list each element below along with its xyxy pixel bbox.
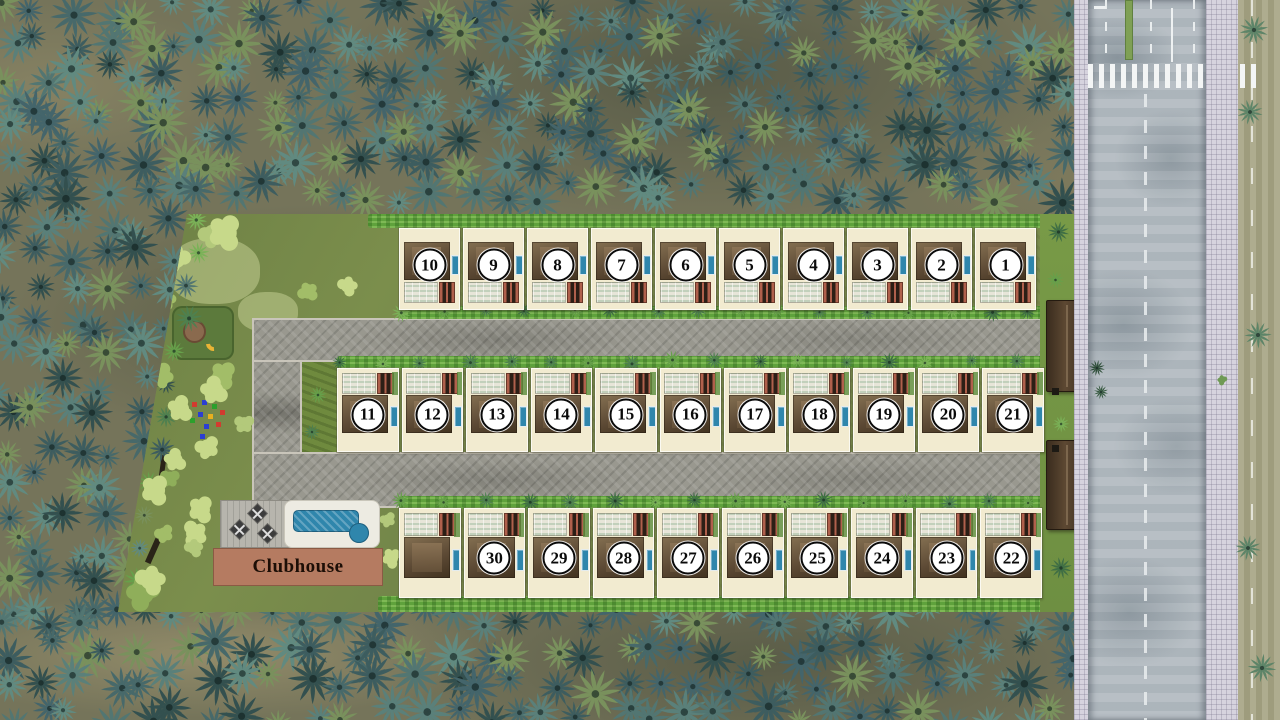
unit-number-badge: 6	[669, 249, 702, 282]
site-plan-rendering: Clubhouse 109876543211112131415161718192…	[0, 0, 1280, 720]
clubhouse-label: Clubhouse	[252, 556, 343, 578]
unit-number-badge: 13	[480, 398, 513, 431]
villa-unit-28: 28	[593, 508, 655, 598]
villa-windows	[439, 282, 456, 303]
unit-number-badge: 27	[672, 542, 705, 575]
villa-trellis	[392, 372, 397, 395]
villa-pool	[583, 406, 591, 427]
villa-trellis	[586, 372, 591, 395]
villa-trellis	[519, 513, 524, 538]
villa-trellis	[583, 513, 588, 538]
villa-pool	[771, 255, 779, 276]
villa-unit-29: 29	[528, 508, 590, 598]
villa-unit-21: 21	[982, 368, 1044, 452]
villa-terrace	[788, 282, 822, 303]
villa-pool	[777, 406, 785, 427]
villa-pool	[707, 255, 715, 276]
villa-terrace	[342, 373, 377, 394]
play-equipment	[190, 418, 195, 423]
gate-pillar	[1052, 445, 1059, 452]
villa-trellis	[906, 513, 911, 538]
villa-windows	[823, 282, 840, 303]
villa-unit-16: 16	[660, 368, 722, 452]
villa-terrace	[729, 373, 764, 394]
hedge-strip	[368, 214, 1076, 228]
play-equipment	[216, 422, 221, 427]
villa-terrace	[922, 373, 957, 394]
villa-pool	[646, 549, 654, 572]
jacuzzi	[349, 523, 369, 543]
villa-trellis	[650, 372, 655, 395]
unit-number-badge: 8	[541, 249, 574, 282]
unit-number-badge: 5	[733, 249, 766, 282]
villa-terrace	[406, 373, 441, 394]
edge-marking	[1251, 0, 1253, 720]
parasol	[230, 520, 248, 538]
gate-pillar	[1052, 388, 1059, 395]
villa-terrace	[533, 513, 568, 536]
villa-terrace	[724, 282, 758, 303]
unit-number-badge: 12	[416, 398, 449, 431]
unit-number-badge: 21	[996, 398, 1029, 431]
play-equipment	[220, 410, 225, 415]
unit-number-badge: 23	[930, 542, 963, 575]
villa-trellis	[454, 513, 459, 538]
villa-trellis	[777, 513, 782, 538]
villa-unit-1: 1	[975, 228, 1036, 310]
villa-terrace	[980, 282, 1014, 303]
lane-marking	[1193, 0, 1195, 60]
villa-unit-8: 8	[527, 228, 588, 310]
villa-pool	[775, 549, 783, 572]
unit-number-badge: 9	[477, 249, 510, 282]
villa-terrace	[793, 373, 828, 394]
villa-pool	[519, 406, 527, 427]
villa-pool	[1033, 549, 1041, 572]
villa-unit-7: 7	[591, 228, 652, 310]
play-equipment	[208, 414, 213, 419]
villa-unit-10: 10	[399, 228, 460, 310]
villa-roof	[404, 537, 450, 577]
villa-terrace	[404, 513, 439, 536]
villa-windows	[695, 282, 712, 303]
crosswalk	[1088, 64, 1206, 88]
villa-unit-15: 15	[595, 368, 657, 452]
villa-unit-20: 20	[918, 368, 980, 452]
villa-windows	[951, 282, 968, 303]
play-equipment	[202, 400, 207, 405]
villa-trellis	[973, 372, 978, 395]
boundary-green-strip	[1040, 214, 1076, 612]
villa-terrace	[858, 373, 893, 394]
pool-deck	[284, 500, 380, 548]
unit-number-badge: 15	[609, 398, 642, 431]
villa-unit-3: 3	[847, 228, 908, 310]
villa-pool	[835, 255, 843, 276]
villa-terrace	[987, 373, 1022, 394]
villa-unit-13: 13	[466, 368, 528, 452]
villa-terrace	[597, 513, 632, 536]
villa-pool	[643, 255, 651, 276]
villa-terrace	[468, 282, 502, 303]
villa-pool	[581, 549, 589, 572]
villa-trellis	[1037, 372, 1042, 395]
villa-terrace	[600, 373, 635, 394]
villa-terrace	[985, 513, 1020, 536]
villa-trellis	[713, 513, 718, 538]
villa-unit-19: 19	[853, 368, 915, 452]
unit-number-badge: 3	[861, 249, 894, 282]
main-road	[1088, 0, 1206, 720]
unit-number-badge: 17	[738, 398, 771, 431]
villa-unit-4: 4	[783, 228, 844, 310]
villa-terrace	[662, 513, 697, 536]
villa-pool	[515, 255, 523, 276]
unit-number-badge: 25	[801, 542, 834, 575]
villa-pool	[906, 406, 914, 427]
villa-terrace	[727, 513, 762, 536]
play-equipment	[212, 404, 217, 409]
villa-unit-5: 5	[719, 228, 780, 310]
unit-number-badge: 26	[736, 542, 769, 575]
villa-pool	[454, 406, 462, 427]
villa-terrace	[916, 282, 950, 303]
villa-pool	[839, 549, 847, 572]
green-island	[302, 362, 340, 452]
villa-trellis	[844, 372, 849, 395]
villa-pool	[390, 406, 398, 427]
villa-unit-30: 30	[464, 508, 526, 598]
villa-pool	[452, 549, 460, 572]
villa-trellis	[779, 372, 784, 395]
villa-trellis	[715, 372, 720, 395]
parasol	[258, 524, 276, 542]
sand-pit	[183, 320, 206, 343]
villa-terrace	[852, 282, 886, 303]
villa-trellis	[842, 513, 847, 538]
lane-marking	[1094, 6, 1106, 9]
villa-windows	[503, 282, 520, 303]
villa-trellis	[908, 372, 913, 395]
unit-number-badge: 2	[925, 249, 958, 282]
villa-pool	[710, 549, 718, 572]
villa-unit-11: 11	[337, 368, 399, 452]
unit-number-badge: 18	[803, 398, 836, 431]
villa-pool	[579, 255, 587, 276]
villa-pool	[1035, 406, 1043, 427]
villa-terrace	[596, 282, 630, 303]
play-equipment	[204, 424, 209, 429]
unit-number-badge: 30	[478, 542, 511, 575]
villa-unit-18: 18	[789, 368, 851, 452]
unit-number-badge: 1	[989, 249, 1022, 282]
roadside-grass	[1238, 0, 1280, 720]
play-equipment	[198, 412, 203, 417]
sidewalk-right	[1206, 0, 1238, 720]
villa-terrace	[532, 282, 566, 303]
unit-number-badge: 16	[674, 398, 707, 431]
villa-unit-unnumbered	[399, 508, 461, 598]
villa-pool	[963, 255, 971, 276]
villa-pool	[841, 406, 849, 427]
lane-marking	[1105, 0, 1107, 60]
villa-windows	[1015, 282, 1032, 303]
villa-pool	[969, 549, 977, 572]
unit-number-badge: 20	[932, 398, 965, 431]
unit-number-badge: 22	[995, 542, 1028, 575]
villa-trellis	[648, 513, 653, 538]
villa-terrace	[660, 282, 694, 303]
unit-number-badge: 19	[867, 398, 900, 431]
unit-number-badge: 29	[542, 542, 575, 575]
villa-windows	[887, 282, 904, 303]
unit-number-badge: 24	[865, 542, 898, 575]
clubhouse-building: Clubhouse	[213, 548, 383, 586]
villa-unit-25: 25	[787, 508, 849, 598]
play-equipment	[200, 434, 205, 439]
unit-number-badge: 10	[413, 249, 446, 282]
parasol	[248, 504, 266, 522]
villa-pool	[1027, 255, 1035, 276]
unit-number-badge: 11	[351, 398, 384, 431]
villa-trellis	[1036, 513, 1041, 538]
unit-number-badge: 28	[607, 542, 640, 575]
villa-pool	[648, 406, 656, 427]
villa-windows	[759, 282, 776, 303]
lane-marking	[1150, 0, 1152, 60]
villa-terrace	[664, 373, 699, 394]
lane-marking	[1171, 8, 1173, 62]
play-equipment	[192, 402, 197, 407]
villa-trellis	[971, 513, 976, 538]
villa-pool	[970, 406, 978, 427]
unit-number-badge: 4	[797, 249, 830, 282]
villa-terrace	[471, 373, 506, 394]
villa-terrace	[468, 513, 503, 536]
villa-unit-12: 12	[402, 368, 464, 452]
villa-unit-6: 6	[655, 228, 716, 310]
villa-pool	[899, 255, 907, 276]
villa-terrace	[856, 513, 891, 536]
center-lane-dash	[1144, 94, 1147, 720]
villa-pool	[904, 549, 912, 572]
villa-windows	[631, 282, 648, 303]
villa-unit-24: 24	[851, 508, 913, 598]
villa-terrace	[535, 373, 570, 394]
unit-number-badge: 7	[605, 249, 638, 282]
villa-unit-17: 17	[724, 368, 786, 452]
villa-terrace	[404, 282, 438, 303]
villa-unit-2: 2	[911, 228, 972, 310]
villa-trellis	[521, 372, 526, 395]
playground	[186, 398, 230, 448]
villa-windows	[567, 282, 584, 303]
villa-unit-9: 9	[463, 228, 524, 310]
villa-trellis	[457, 372, 462, 395]
villa-unit-27: 27	[657, 508, 719, 598]
villa-pool	[516, 549, 524, 572]
road-median	[1125, 0, 1133, 60]
hedge-strip	[378, 596, 1062, 612]
unit-number-badge: 14	[545, 398, 578, 431]
play-equipment	[210, 438, 215, 443]
villa-unit-23: 23	[916, 508, 978, 598]
villa-pool	[712, 406, 720, 427]
sidewalk-left	[1074, 0, 1088, 720]
villa-pool	[451, 255, 459, 276]
villa-terrace	[920, 513, 955, 536]
garden-path	[168, 238, 260, 304]
villa-unit-22: 22	[980, 508, 1042, 598]
villa-unit-14: 14	[531, 368, 593, 452]
villa-unit-26: 26	[722, 508, 784, 598]
villa-terrace	[791, 513, 826, 536]
